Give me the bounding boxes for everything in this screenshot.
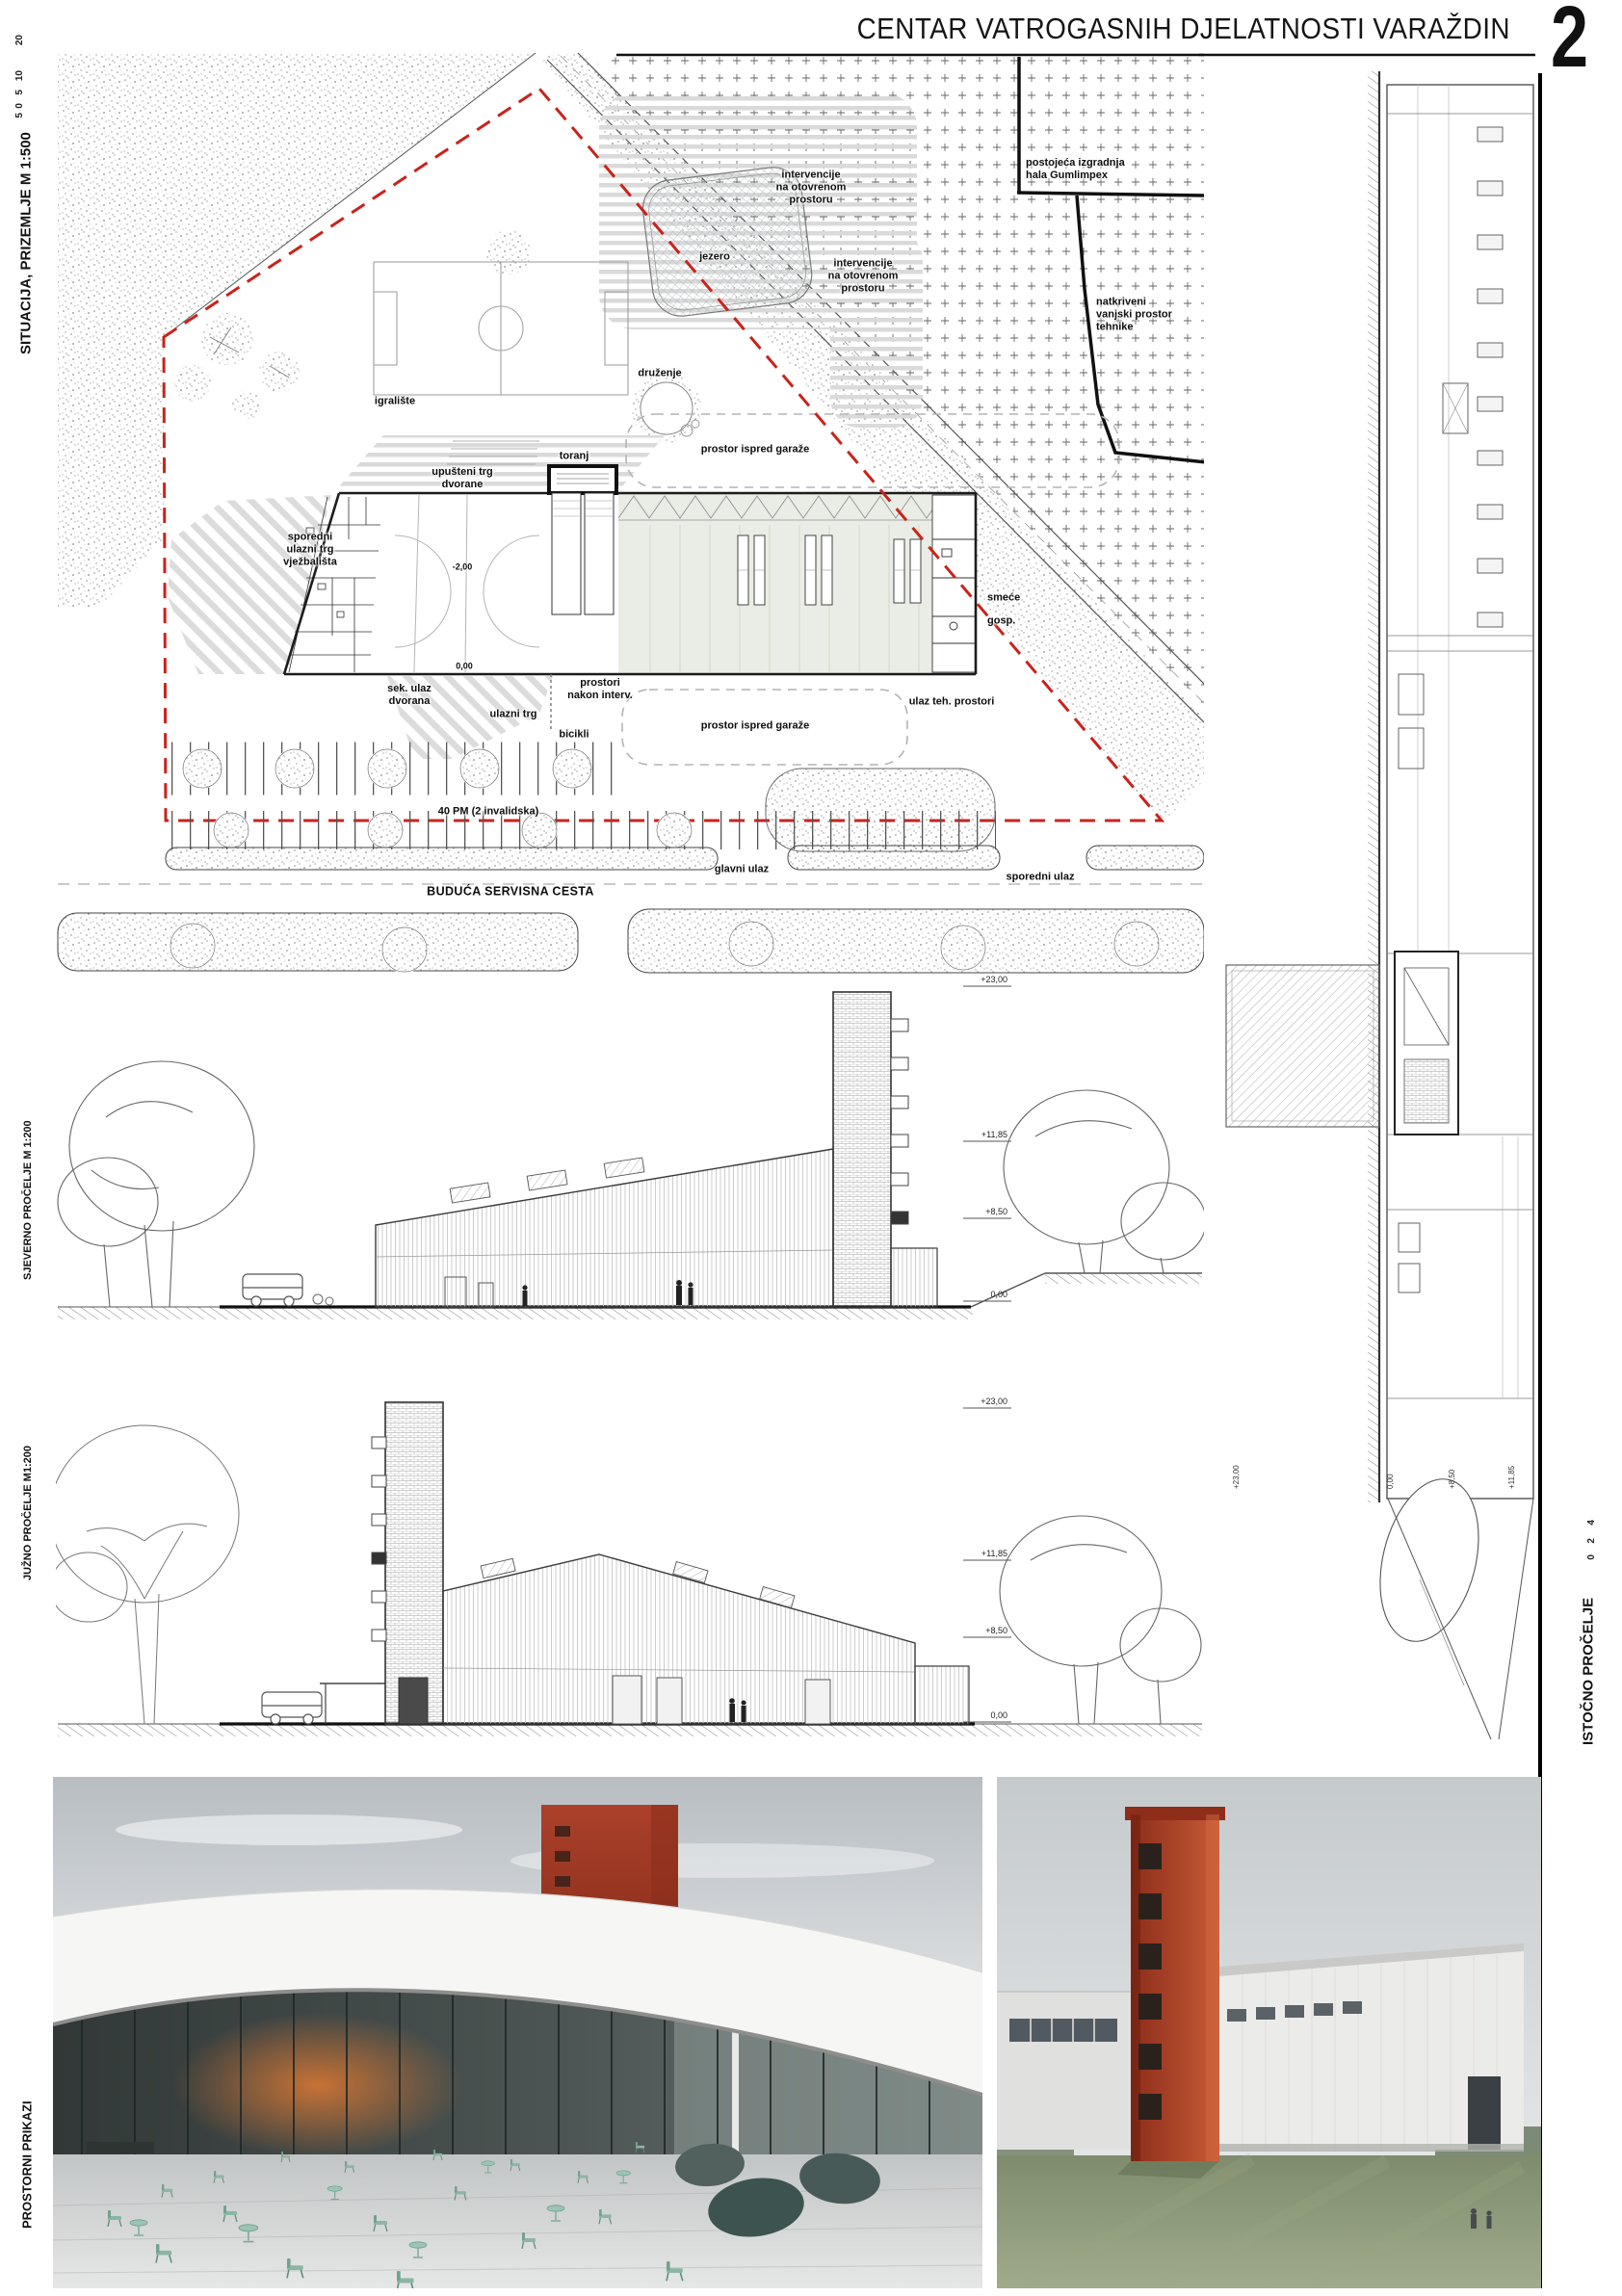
- page-number: 2: [1551, 0, 1588, 88]
- label-upusteni-trg: upušteni trg dvorane: [432, 466, 493, 491]
- south-elevation-drawing: +23,00 +11,85 +8,50 0,00: [56, 1363, 1204, 1748]
- scale-tick: 2: [1587, 1538, 1597, 1544]
- tree-right: [1000, 1516, 1201, 1724]
- service-road: [58, 846, 1204, 973]
- scale-tick: 5: [15, 113, 25, 118]
- label-bicikli: bicikli: [559, 729, 589, 742]
- level-label: 0,00: [990, 1710, 1007, 1720]
- label-glavni-ulaz: glavni ulaz: [715, 864, 769, 876]
- sports-hall-courts: [395, 495, 539, 672]
- service-rooms: [932, 495, 976, 672]
- north-elevation-title: SJEVERNO PROČELJE M 1:200: [13, 1127, 42, 1273]
- label-intervencije-gore: intervencije na otovrenom prostoru: [776, 170, 847, 207]
- label-postojeca-izgradnja: postojeća izgradnja hala Gumlimpex: [1026, 157, 1125, 182]
- white-wing: [997, 1992, 1139, 2150]
- level-label: +11,85: [981, 1549, 1007, 1558]
- planter: [87, 2142, 154, 2153]
- label-natkriveni-prostor: natkriveni vanjski prostor tehnike: [1096, 297, 1172, 334]
- label-ulaz-teh: ulaz teh. prostori: [909, 696, 995, 709]
- hall-facade: [376, 1149, 833, 1307]
- label-jezero: jezero: [699, 251, 730, 264]
- label-level-0: 0,00: [456, 662, 473, 672]
- render-interior: [53, 1777, 982, 2288]
- page-title: CENTAR VATROGASNIH DJELATNOSTI VARAŽDIN: [671, 12, 1510, 46]
- tower-section: [1395, 952, 1458, 1135]
- white-hall: [1219, 1944, 1524, 2152]
- east-facade: [1387, 85, 1533, 1499]
- tree-right: [1004, 1090, 1204, 1273]
- level-label: +23,00: [1232, 1465, 1241, 1489]
- tree-left: [58, 1061, 254, 1307]
- level-label: 0,00: [990, 1290, 1007, 1299]
- garage-plan: [618, 493, 976, 674]
- tower-plan: [549, 466, 616, 493]
- renders-title: PROSTORNI PRIKAZI: [12, 2092, 42, 2238]
- site-plan-drawing: [53, 48, 1204, 975]
- side-entry-plaza: [168, 495, 331, 674]
- interior-glow: [173, 2013, 462, 2157]
- bus-silhouette: [243, 1274, 302, 1306]
- tower-elevation: [385, 1402, 443, 1724]
- level-lines: [963, 1408, 1011, 1722]
- canopy-roof-plan: [1226, 965, 1379, 1127]
- level-label: +23,00: [981, 975, 1007, 984]
- label-sporedni-trg: sporedni ulazni trg vježbališta: [283, 532, 337, 569]
- label-prostori-nakon: prostori nakon interv.: [567, 677, 633, 702]
- site-plan-title: SITUACIJA, PRIZEMLJE M 1:500: [8, 133, 44, 354]
- label-igraliste: igralište: [375, 396, 415, 408]
- label-gosp: gosp.: [987, 615, 1015, 628]
- label-toranj: toranj: [560, 451, 589, 463]
- scale-tick: 20: [15, 35, 25, 45]
- level-lines: [963, 986, 1011, 1301]
- label-smece: smeće: [987, 592, 1020, 605]
- gathering-circle: [641, 382, 693, 434]
- label-sek-ulaz: sek. ulaz dvorana: [387, 683, 432, 708]
- label-prostor-garaze-gore: prostor ispred garaže: [701, 444, 809, 457]
- tree-canopy: [766, 769, 995, 851]
- level-label: +11,85: [981, 1130, 1007, 1139]
- bus-silhouette: [262, 1692, 322, 1724]
- site-plan-scale-bar: 20 10 5 0 5: [15, 35, 25, 118]
- east-scale-bar: 4 2 0: [1587, 1520, 1597, 1560]
- level-label: +8,50: [985, 1207, 1007, 1216]
- tree-left: [56, 1425, 239, 1724]
- tower-windows: [891, 1019, 908, 1224]
- label-level-minus2: -2,00: [453, 562, 473, 573]
- north-elevation-drawing: +23,00 +11,85 +8,50 0,00: [56, 968, 1204, 1355]
- presentation-board: CENTAR VATROGASNIH DJELATNOSTI VARAŽDIN …: [0, 0, 1622, 2296]
- level-label: +11,85: [1507, 1465, 1516, 1489]
- level-label: +8,50: [1448, 1469, 1456, 1489]
- label-ulazni-trg: ulazni trg: [490, 709, 537, 721]
- red-tower: [1125, 1807, 1225, 2161]
- scale-tick: 4: [1587, 1520, 1597, 1526]
- football-field: [374, 262, 628, 395]
- label-parking: 40 PM (2 invalidska): [438, 806, 539, 819]
- entrance-door: [1468, 2076, 1501, 2150]
- label-druzenje: druženje: [638, 368, 681, 380]
- render-exterior: [997, 1777, 1541, 2288]
- south-elevation-title: JUŽNO PROČELJE M1:200: [13, 1450, 42, 1576]
- scale-tick: 0: [15, 103, 25, 109]
- tower-elevation: [833, 992, 891, 1307]
- scale-tick: 10: [15, 70, 25, 81]
- level-label: 0,00: [1386, 1474, 1395, 1489]
- label-sporedni-ulaz: sporedni ulaz: [1007, 872, 1075, 884]
- level-label: +8,50: [985, 1626, 1007, 1635]
- label-servisna-cesta: BUDUĆA SERVISNA CESTA: [427, 885, 594, 900]
- level-label: +23,00: [981, 1396, 1007, 1406]
- scale-tick: 0: [1587, 1554, 1597, 1560]
- label-prostor-garaze-dolje: prostor ispred garaže: [701, 720, 809, 733]
- east-elevation-title: ISTOČNO PROČELJE: [1572, 1585, 1605, 1757]
- east-elevation-drawing: +23,00 0,00 +8,50 +11,85: [1199, 53, 1536, 1748]
- tower-windows: [372, 1437, 386, 1641]
- label-intervencije-dolje: intervencije na otovrenom prostoru: [828, 258, 899, 296]
- scale-tick: 5: [15, 90, 25, 95]
